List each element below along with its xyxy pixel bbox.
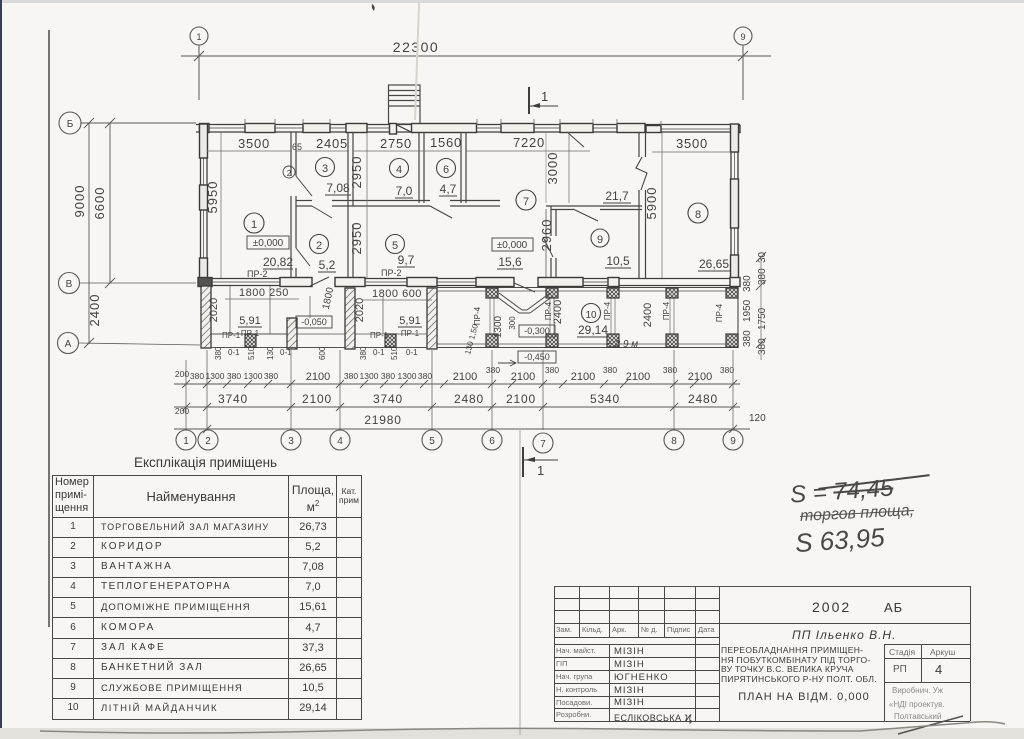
svg-text:ПР-4: ПР-4 bbox=[662, 301, 671, 320]
svg-text:ПР-4: ПР-4 bbox=[544, 301, 553, 320]
svg-text:380: 380 bbox=[227, 371, 241, 381]
svg-text:380: 380 bbox=[418, 371, 432, 381]
svg-text:130 1,50: 130 1,50 bbox=[463, 323, 480, 356]
svg-text:1: 1 bbox=[541, 89, 548, 104]
svg-text:3500: 3500 bbox=[676, 136, 708, 151]
svg-text:2405: 2405 bbox=[316, 136, 348, 151]
svg-text:2: 2 bbox=[205, 436, 211, 447]
svg-text:380: 380 bbox=[663, 365, 677, 375]
svg-text:22300: 22300 bbox=[393, 39, 439, 55]
svg-text:380: 380 bbox=[720, 365, 734, 375]
svg-text:Б: Б bbox=[67, 119, 74, 130]
svg-text:200: 200 bbox=[175, 406, 189, 416]
svg-text:1300: 1300 bbox=[244, 371, 263, 381]
svg-text:-0,300: -0,300 bbox=[524, 326, 550, 336]
svg-text:9000: 9000 bbox=[72, 185, 87, 218]
svg-text:±0,000: ±0,000 bbox=[253, 238, 284, 249]
svg-text:9: 9 bbox=[730, 436, 736, 447]
svg-text:2100: 2100 bbox=[306, 371, 330, 383]
svg-text:5,2: 5,2 bbox=[319, 258, 336, 272]
svg-text:-0,050: -0,050 bbox=[301, 317, 327, 327]
svg-text:2: 2 bbox=[316, 240, 322, 252]
svg-text:1300: 1300 bbox=[493, 315, 504, 338]
svg-text:2950: 2950 bbox=[349, 156, 364, 189]
svg-text:7: 7 bbox=[523, 196, 529, 208]
svg-text:-0,450: -0,450 bbox=[524, 352, 550, 362]
svg-text:200: 200 bbox=[175, 369, 189, 379]
svg-text:7,08: 7,08 bbox=[326, 181, 350, 195]
svg-text:600: 600 bbox=[318, 346, 327, 360]
svg-text:8: 8 bbox=[695, 209, 701, 221]
svg-text:1800 600: 1800 600 bbox=[372, 288, 422, 300]
svg-text:1300: 1300 bbox=[398, 371, 417, 381]
svg-text:2020: 2020 bbox=[208, 298, 220, 322]
svg-text:380: 380 bbox=[486, 365, 500, 375]
svg-text:380: 380 bbox=[742, 275, 753, 292]
svg-text:ПР-2: ПР-2 bbox=[247, 269, 267, 279]
svg-text:ПР-2: ПР-2 bbox=[381, 268, 401, 278]
svg-text:3: 3 bbox=[322, 163, 328, 175]
svg-text:ПР-1: ПР-1 bbox=[222, 331, 241, 340]
svg-text:5,91: 5,91 bbox=[399, 315, 420, 327]
svg-text:2400: 2400 bbox=[642, 303, 654, 327]
svg-text:10: 10 bbox=[585, 310, 597, 321]
svg-text:ПР-1: ПР-1 bbox=[241, 329, 260, 338]
svg-text:4,7: 4,7 bbox=[440, 182, 457, 196]
svg-text:380: 380 bbox=[381, 371, 395, 381]
svg-text:3740: 3740 bbox=[373, 392, 403, 406]
svg-text:5950: 5950 bbox=[205, 181, 220, 214]
svg-text:5,91: 5,91 bbox=[239, 315, 260, 327]
svg-text:4: 4 bbox=[337, 436, 343, 447]
svg-text:1560: 1560 bbox=[430, 135, 462, 150]
svg-text:1950: 1950 bbox=[742, 299, 753, 322]
svg-text:130: 130 bbox=[266, 346, 275, 360]
svg-text:380: 380 bbox=[757, 268, 768, 285]
svg-text:380: 380 bbox=[603, 365, 617, 375]
svg-text:10,5: 10,5 bbox=[606, 254, 630, 268]
svg-text:1: 1 bbox=[196, 32, 201, 42]
svg-text:29,14: 29,14 bbox=[578, 323, 608, 337]
svg-text:20,82: 20,82 bbox=[263, 255, 293, 269]
svg-text:15,6: 15,6 bbox=[498, 255, 522, 269]
svg-text:~ 2 9 м: ~ 2 9 м bbox=[606, 339, 638, 350]
svg-text:0-1: 0-1 bbox=[280, 348, 292, 357]
svg-text:2950: 2950 bbox=[349, 222, 364, 255]
svg-text:3000: 3000 bbox=[545, 152, 560, 185]
svg-text:1750: 1750 bbox=[757, 307, 768, 330]
svg-text:2750: 2750 bbox=[380, 136, 412, 151]
svg-text:6600: 6600 bbox=[92, 187, 107, 220]
svg-text:21980: 21980 bbox=[364, 413, 401, 427]
svg-text:5900: 5900 bbox=[644, 187, 659, 220]
svg-text:7,0: 7,0 bbox=[396, 184, 413, 198]
svg-text:±0,000: ±0,000 bbox=[497, 240, 528, 251]
svg-text:380: 380 bbox=[264, 371, 278, 381]
svg-text:6: 6 bbox=[443, 164, 449, 176]
svg-text:ПР-4: ПР-4 bbox=[603, 301, 612, 320]
svg-text:2100: 2100 bbox=[626, 371, 650, 383]
svg-text:1: 1 bbox=[251, 219, 257, 231]
svg-text:1: 1 bbox=[183, 436, 189, 447]
svg-text:380: 380 bbox=[190, 371, 204, 381]
svg-text:26,65: 26,65 bbox=[699, 257, 729, 271]
svg-text:2100: 2100 bbox=[511, 371, 535, 383]
svg-text:3: 3 bbox=[288, 436, 294, 447]
svg-text:5340: 5340 bbox=[590, 392, 620, 406]
svg-text:В: В bbox=[66, 279, 73, 290]
svg-text:1800: 1800 bbox=[321, 286, 336, 310]
svg-text:ПР-4: ПР-4 bbox=[473, 306, 482, 325]
svg-text:2480: 2480 bbox=[454, 392, 484, 406]
svg-text:120: 120 bbox=[749, 413, 766, 424]
svg-text:ПР-4: ПР-4 bbox=[715, 303, 724, 322]
svg-text:8: 8 bbox=[671, 436, 677, 447]
svg-text:380: 380 bbox=[742, 330, 753, 347]
svg-text:21,7: 21,7 bbox=[605, 189, 629, 203]
svg-text:3740: 3740 bbox=[218, 392, 248, 406]
svg-text:А: А bbox=[65, 339, 72, 350]
svg-text:2100: 2100 bbox=[302, 392, 332, 406]
svg-text:380: 380 bbox=[359, 346, 368, 360]
svg-text:9: 9 bbox=[597, 234, 603, 246]
svg-text:0-1: 0-1 bbox=[373, 348, 385, 357]
svg-text:9: 9 bbox=[740, 32, 745, 42]
svg-text:ПР-1: ПР-1 bbox=[370, 331, 389, 340]
svg-text:ПР-1: ПР-1 bbox=[401, 329, 420, 338]
svg-text:380: 380 bbox=[545, 365, 559, 375]
svg-text:5: 5 bbox=[392, 240, 398, 252]
svg-text:2100: 2100 bbox=[571, 371, 595, 383]
svg-text:380: 380 bbox=[214, 346, 223, 360]
svg-text:2400: 2400 bbox=[552, 300, 564, 324]
svg-text:30: 30 bbox=[757, 251, 768, 263]
svg-text:3500: 3500 bbox=[238, 136, 270, 151]
svg-text:380: 380 bbox=[344, 371, 358, 381]
svg-text:7: 7 bbox=[540, 439, 546, 450]
svg-text:1300: 1300 bbox=[360, 371, 379, 381]
svg-text:1800 250: 1800 250 bbox=[239, 287, 289, 299]
svg-text:2400: 2400 bbox=[87, 294, 102, 327]
svg-text:1300: 1300 bbox=[206, 371, 225, 381]
svg-text:2100: 2100 bbox=[506, 392, 536, 406]
svg-text:380: 380 bbox=[757, 338, 768, 355]
svg-text:2100: 2100 bbox=[688, 371, 712, 383]
svg-text:4: 4 bbox=[396, 164, 402, 176]
svg-text:65: 65 bbox=[292, 142, 302, 152]
svg-text:5: 5 bbox=[429, 436, 435, 447]
svg-text:2100: 2100 bbox=[453, 371, 477, 383]
svg-text:2: 2 bbox=[287, 169, 292, 178]
svg-text:300: 300 bbox=[508, 316, 517, 330]
svg-text:0-1: 0-1 bbox=[228, 348, 240, 357]
svg-text:510: 510 bbox=[390, 346, 399, 360]
svg-text:2020: 2020 bbox=[354, 298, 366, 322]
svg-text:510: 510 bbox=[247, 346, 256, 360]
svg-text:7220: 7220 bbox=[513, 135, 545, 150]
svg-text:1: 1 bbox=[537, 463, 544, 478]
svg-text:2960: 2960 bbox=[539, 219, 554, 252]
svg-text:9,7: 9,7 bbox=[398, 253, 415, 267]
svg-text:0-1: 0-1 bbox=[406, 348, 418, 357]
svg-text:2480: 2480 bbox=[688, 392, 718, 406]
svg-text:6: 6 bbox=[489, 436, 495, 447]
